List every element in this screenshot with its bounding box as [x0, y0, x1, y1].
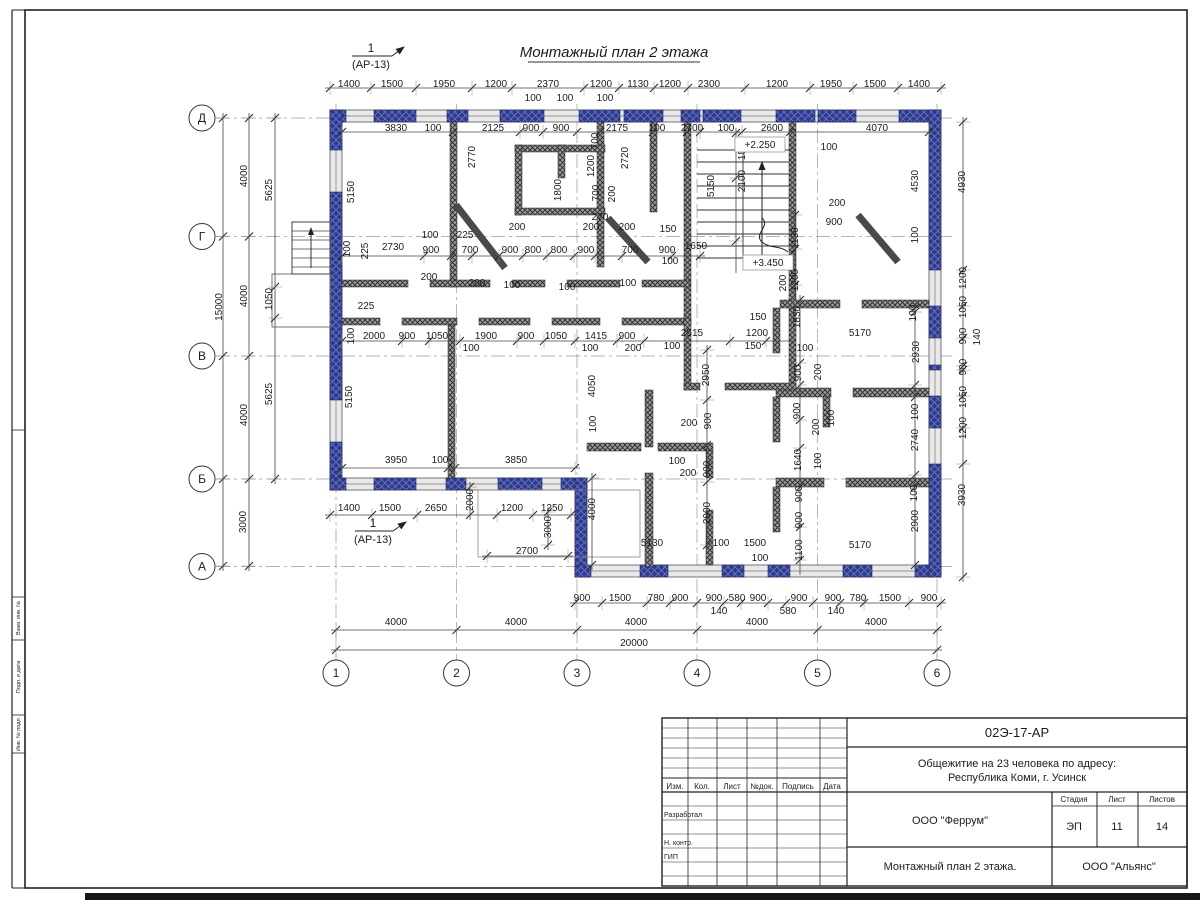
dim-label: 200: [607, 185, 618, 202]
wall-pier: [330, 192, 342, 400]
dim-label: 1200: [790, 268, 801, 291]
dim-label: 4050: [587, 374, 598, 397]
wall-pier: [624, 110, 663, 122]
dim-label: 900: [502, 245, 519, 256]
axis-label: Г: [199, 230, 206, 244]
dim-label: 900: [825, 593, 842, 604]
dim-label: 100: [346, 327, 357, 344]
dim-label: 4000: [587, 497, 598, 520]
frame-side-label: Инв. № подл.: [16, 716, 22, 751]
contractor-org: ООО "Альянс": [1082, 861, 1156, 873]
level-mark: +3.450: [753, 258, 784, 269]
wall-pier: [446, 478, 466, 490]
axis-label: А: [198, 560, 206, 574]
dim-label: 200: [680, 468, 697, 479]
section-number: 1: [370, 516, 377, 530]
col-podpis: Подпись: [782, 782, 814, 791]
dim-label: 200: [509, 222, 526, 233]
dim-label: 1830: [792, 305, 803, 328]
dim-label: 1400: [338, 79, 361, 90]
dim-label: 200: [619, 222, 636, 233]
dim-label: 200: [469, 278, 486, 289]
dim-label: 140: [972, 328, 983, 345]
dim-label: 4000: [625, 617, 648, 628]
axis-marker-col: 6: [924, 660, 950, 686]
inner-wall: [684, 122, 691, 325]
inner-wall: [448, 325, 455, 478]
wall-pier: [498, 478, 542, 490]
dim-label: 100: [662, 256, 679, 267]
dim-label: 900: [703, 412, 714, 429]
sheet-title: Монтажный план 2 этажа.: [884, 861, 1017, 873]
dim-label: 4000: [505, 617, 528, 628]
axis-grid-lines: [216, 104, 952, 662]
axis-label: Д: [198, 111, 206, 125]
axis-marker-col: 2: [444, 660, 470, 686]
dim-label: 100: [422, 230, 439, 241]
dim-label: 200: [778, 274, 789, 291]
dim-label: 900: [523, 123, 540, 134]
dim-label: 140: [711, 606, 728, 617]
dim-label: 900: [750, 593, 767, 604]
col-izm: Изм.: [666, 782, 683, 791]
wall-pier: [330, 478, 346, 490]
frame-side-label: Подп. и дата: [16, 660, 22, 693]
dim-label: 1500: [879, 593, 902, 604]
dim-label: 225: [360, 242, 371, 259]
dim-label: 4000: [385, 617, 408, 628]
dim-label: 1050: [958, 385, 969, 408]
dim-label: 200: [625, 343, 642, 354]
project-name-line1: Общежитие на 23 человека по адресу:: [918, 758, 1116, 770]
dim-label: 100: [910, 403, 921, 420]
inner-wall: [645, 473, 653, 567]
dim-label: 2125: [482, 123, 505, 134]
stage-label: Стадия: [1060, 795, 1087, 804]
axis-marker-row: Г: [189, 224, 215, 250]
dim-label: 1400: [908, 79, 931, 90]
dim-label: 900: [702, 460, 713, 477]
inner-wall: [773, 487, 780, 532]
wall-pier: [447, 110, 468, 122]
wall-pier: [575, 478, 587, 577]
inner-wall: [558, 145, 565, 178]
dim-label: 5170: [849, 328, 872, 339]
axis-label: 3: [574, 666, 581, 680]
dim-label: 100: [669, 456, 686, 467]
dim-label: 100: [525, 93, 542, 104]
dim-label: 15000: [214, 293, 225, 321]
dim-label: 2700: [516, 546, 539, 557]
dim-label: 4000: [746, 617, 769, 628]
frame-side-labels: Взам. инв. № Подп. и дата Инв. № подл.: [16, 601, 22, 751]
axis-marker-col: 3: [564, 660, 590, 686]
plan-walls: [272, 110, 941, 577]
dim-label: 2650: [425, 503, 448, 514]
bottom-edge-bar: [85, 893, 1200, 900]
dim-label: 100: [797, 343, 814, 354]
inner-wall: [402, 318, 457, 325]
section-marker-bottom: 1 (АР-13): [354, 516, 406, 546]
inner-wall: [645, 390, 653, 447]
axis-label: 6: [934, 666, 941, 680]
dim-label: 2370: [537, 79, 560, 90]
wall-pier: [330, 110, 342, 150]
dim-label: 780: [850, 593, 867, 604]
dim-label: 2600: [761, 123, 784, 134]
wall-pier: [776, 110, 815, 122]
dim-label: 100: [559, 282, 576, 293]
dim-label: 1200: [659, 79, 682, 90]
inner-wall: [725, 383, 796, 390]
dim-label: 780: [648, 593, 665, 604]
dim-label: 225: [358, 301, 375, 312]
section-sheet-ref: (АР-13): [352, 59, 390, 71]
dim-label: 4000: [239, 284, 250, 307]
section-marker-top: 1 (АР-13): [352, 41, 404, 71]
dim-label: 100: [432, 455, 449, 466]
dim-label: 140: [828, 606, 845, 617]
dim-label: 3950: [385, 455, 408, 466]
dim-label: 1200: [501, 503, 524, 514]
inner-wall: [587, 443, 641, 451]
dim-label: 2300: [698, 79, 721, 90]
wall-pier: [768, 565, 790, 577]
axis-marker-row: Д: [189, 105, 215, 131]
dim-label: 100: [664, 341, 681, 352]
dim-label: 900: [672, 593, 689, 604]
axis-marker-row: А: [189, 554, 215, 580]
dim-label: 4930: [957, 170, 968, 193]
axis-label: 4: [694, 666, 701, 680]
axis-label: Б: [198, 472, 206, 486]
dim-label: 1200: [586, 154, 597, 177]
dim-label: 1950: [433, 79, 456, 90]
wall-pier: [818, 110, 856, 122]
wall-pier: [929, 306, 941, 338]
dim-label: 1250: [541, 503, 564, 514]
dim-label: 100: [909, 484, 920, 501]
dim-label: 1900: [475, 331, 498, 342]
dim-label: 150: [660, 224, 677, 235]
dim-label: 100: [342, 240, 353, 257]
dim-label: 2700: [681, 123, 704, 134]
col-list: Лист: [723, 782, 741, 791]
dim-label: 5625: [264, 178, 275, 201]
wall-pier: [575, 565, 591, 577]
dim-label: 900: [958, 358, 969, 375]
dim-label: 700: [591, 184, 602, 201]
dim-label: 100: [713, 538, 730, 549]
dim-label: 900: [706, 593, 723, 604]
sheets-total: 14: [1156, 821, 1168, 833]
dim-label: 900: [423, 245, 440, 256]
frame-side-label: Взам. инв. №: [16, 601, 22, 635]
dim-label: 2175: [606, 123, 629, 134]
section-sheet-ref: (АР-13): [354, 534, 392, 546]
dim-label: 2100: [737, 169, 748, 192]
dim-label: 200: [813, 363, 824, 380]
dim-label: 1130: [627, 79, 649, 90]
inner-wall: [479, 318, 530, 325]
wall-pier: [929, 464, 941, 577]
dim-label: 3830: [385, 123, 408, 134]
dim-label: 900: [792, 402, 803, 419]
dim-label: 1640: [793, 448, 804, 471]
dim-label: 2770: [467, 145, 478, 168]
axis-marker-col: 4: [684, 660, 710, 686]
dim-label: 150: [750, 312, 767, 323]
dim-label: 800: [525, 245, 542, 256]
wall-pier: [703, 110, 741, 122]
wall-pier: [579, 110, 620, 122]
dim-label: 900: [958, 327, 969, 344]
dim-label: 100: [908, 304, 919, 321]
dim-label: 1200: [958, 416, 969, 439]
dim-label: 200: [583, 222, 600, 233]
dim-label: 1200: [766, 79, 789, 90]
dim-label: 2900: [910, 509, 921, 532]
dim-label: 4000: [239, 403, 250, 426]
dim-label: 1200: [746, 328, 769, 339]
dim-label: 1650: [685, 241, 708, 252]
dim-label: 1050: [545, 331, 568, 342]
sheet-number: 11: [1111, 821, 1122, 833]
dim-label: 2930: [911, 340, 922, 363]
dim-label: 900: [921, 593, 938, 604]
dim-label: 900: [574, 593, 591, 604]
dim-label: 4530: [910, 169, 921, 192]
dim-label: 5170: [849, 540, 872, 551]
dim-label: 900: [794, 485, 805, 502]
dim-label: 1500: [609, 593, 632, 604]
dim-label: 900: [518, 331, 535, 342]
dim-label: 700: [590, 132, 601, 149]
inner-wall: [650, 122, 657, 212]
dim-label: 20000: [620, 638, 648, 649]
col-kol: Кол.: [694, 782, 710, 791]
dim-label: 100: [597, 93, 614, 104]
col-doc: №док.: [750, 782, 773, 791]
sheet-label: Лист: [1108, 795, 1126, 804]
dim-label: 150: [745, 341, 762, 352]
wall-pier: [681, 110, 700, 122]
project-name-line2: Республика Коми, г. Усинск: [948, 772, 1086, 784]
dim-label: 800: [551, 245, 568, 256]
dim-label: 4000: [865, 617, 888, 628]
dim-label: 2000: [363, 331, 386, 342]
dim-label: 100: [718, 123, 735, 134]
dim-label: 3000: [543, 515, 554, 538]
wall-pier: [929, 365, 941, 370]
inner-wall: [853, 388, 929, 397]
dim-label: 200: [421, 272, 438, 283]
dim-label: 5150: [344, 385, 355, 408]
dim-label: 1200: [590, 79, 613, 90]
dim-label: 3000: [238, 510, 249, 533]
external-landing: [272, 274, 330, 327]
axis-marker-col: 5: [805, 660, 831, 686]
wall-pier: [640, 565, 668, 577]
dim-label: 100: [752, 553, 769, 564]
dim-label: 2950: [701, 363, 712, 386]
wall-pier: [929, 396, 941, 428]
sheets-label: Листов: [1149, 795, 1175, 804]
dim-label: 900: [659, 245, 676, 256]
dim-label: 580: [780, 606, 797, 617]
title-block: 02Э-17-АР Общежитие на 23 человека по ад…: [662, 718, 1187, 886]
inner-wall: [773, 308, 780, 353]
dim-label: 5150: [706, 174, 717, 197]
dim-label: 5130: [641, 538, 664, 549]
col-data: Дата: [823, 782, 841, 791]
wall-pier: [374, 478, 416, 490]
dim-label: 2000: [465, 488, 476, 511]
dim-label: 3850: [505, 455, 528, 466]
row-nkontr: Н. контр.: [664, 840, 693, 847]
axis-label: 1: [333, 666, 340, 680]
dim-label: 100: [588, 415, 599, 432]
dim-label: 100: [826, 409, 837, 426]
dim-label: 1950: [820, 79, 843, 90]
dim-label: 580: [729, 593, 746, 604]
wall-pier: [374, 110, 416, 122]
dim-label: 900: [791, 593, 808, 604]
dim-label: 1100: [794, 539, 805, 561]
dim-label: 100: [910, 226, 921, 243]
plan-title: Монтажный план 2 этажа: [520, 44, 709, 61]
dim-label: 100: [821, 142, 838, 153]
inner-wall: [684, 383, 700, 390]
dim-label: 1400: [338, 503, 361, 514]
dim-label: 1500: [379, 503, 402, 514]
dim-label: 900: [399, 331, 416, 342]
dim-label: 100: [557, 93, 574, 104]
inner-wall: [515, 145, 522, 215]
dim-label: 900: [794, 511, 805, 528]
section-number: 1: [368, 41, 375, 55]
inner-wall: [622, 318, 684, 325]
inner-wall: [642, 280, 690, 287]
dim-label: 1500: [744, 538, 767, 549]
inner-wall: [773, 397, 780, 442]
dim-label: 900: [578, 245, 595, 256]
dim-label: 100: [649, 123, 666, 134]
dim-label: 100: [463, 343, 480, 354]
doc-number: 02Э-17-АР: [985, 725, 1049, 740]
axis-marker-row: Б: [189, 466, 215, 492]
dim-label: 700: [622, 245, 639, 256]
plan-title-group: Монтажный план 2 этажа: [520, 44, 709, 62]
dim-label: 700: [462, 245, 479, 256]
axis-label: 2: [453, 666, 460, 680]
axis-label: 5: [814, 666, 821, 680]
dim-label: 1500: [381, 79, 404, 90]
dim-label: 2730: [382, 242, 405, 253]
dim-label: 4000: [239, 164, 250, 187]
wall-pier: [929, 110, 941, 270]
dim-label: 1050: [264, 287, 275, 310]
dim-label: 100: [504, 280, 521, 291]
row-gip: ГИП: [664, 854, 678, 861]
dim-label: 200: [681, 418, 698, 429]
dim-label: 900: [826, 217, 843, 228]
dim-label: 2900: [702, 501, 713, 524]
dim-label: 100: [620, 278, 637, 289]
dim-label: 225: [457, 230, 474, 241]
dim-label: 1800: [553, 178, 564, 201]
dim-label: 1050: [958, 295, 969, 318]
wall-pier: [722, 565, 744, 577]
dim-label: 5150: [346, 180, 357, 203]
dim-label: 2720: [620, 146, 631, 169]
axis-marker-row: В: [189, 343, 215, 369]
inner-wall: [342, 318, 380, 325]
dim-label: 1500: [864, 79, 887, 90]
wall-pier: [500, 110, 544, 122]
row-razrabotal: Разработал: [664, 811, 702, 819]
dim-label: 1200: [485, 79, 508, 90]
dim-label: 4070: [866, 123, 889, 134]
dim-label: 200: [811, 418, 822, 435]
dim-label: 3930: [957, 483, 968, 506]
designer-org: ООО "Феррум": [912, 815, 988, 827]
dim-label: 900: [553, 123, 570, 134]
diagonal-wall: [858, 215, 898, 262]
dim-label: 1200: [958, 266, 969, 289]
dim-label: 100: [813, 452, 824, 469]
dim-label: 100: [425, 123, 442, 134]
dim-label: 900: [619, 331, 636, 342]
dim-label: 1050: [426, 331, 449, 342]
inner-wall: [342, 280, 408, 287]
dim-label: 1130: [790, 227, 801, 249]
level-mark: +2.250: [745, 140, 776, 151]
stage-value: ЭП: [1066, 821, 1082, 833]
dim-label: 5625: [264, 382, 275, 405]
inner-wall: [552, 318, 600, 325]
drawing-sheet: Взам. инв. № Подп. и дата Инв. № подл. М…: [0, 0, 1200, 900]
dim-label: 100: [582, 343, 599, 354]
axis-marker-col: 1: [323, 660, 349, 686]
dim-label: 2515: [681, 328, 704, 339]
dim-label: 1415: [585, 331, 608, 342]
dim-label: 2740: [910, 428, 921, 451]
wall-pier: [843, 565, 872, 577]
inner-wall: [780, 300, 840, 308]
axis-label: В: [198, 349, 206, 363]
porch-outline: [478, 490, 640, 557]
dim-label: 200: [829, 198, 846, 209]
dim-label: 900: [793, 364, 804, 381]
